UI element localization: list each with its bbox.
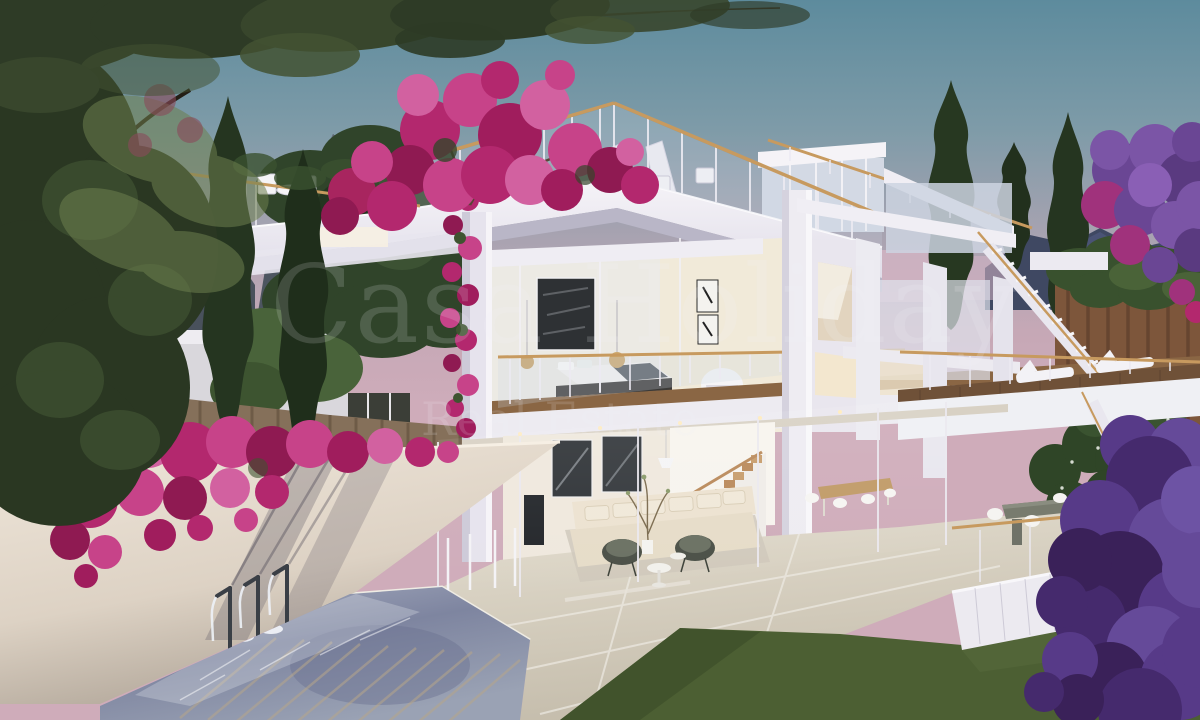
calligraphy-frames (697, 280, 718, 344)
render-canvas (0, 0, 1200, 720)
villa-render: Casa Holiday Real Estate (0, 0, 1200, 720)
